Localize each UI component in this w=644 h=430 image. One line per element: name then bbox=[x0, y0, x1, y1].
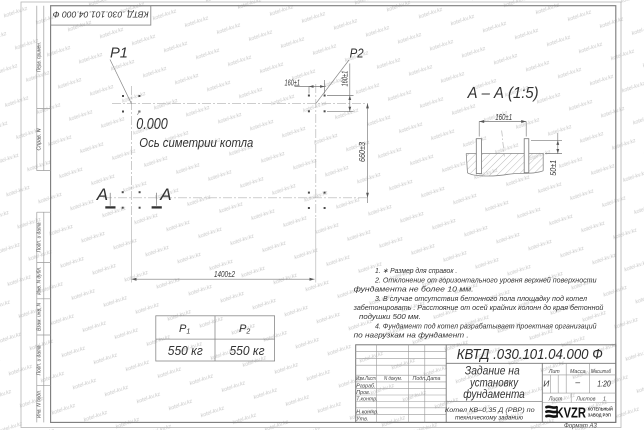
svg-text:1: 1 bbox=[603, 396, 606, 402]
svg-text:Справ. N: Справ. N bbox=[37, 128, 43, 150]
svg-text:Н.контр.: Н.контр. bbox=[356, 410, 378, 416]
svg-text:A: A bbox=[96, 185, 108, 204]
svg-text:Ось симетрии котла: Ось симетрии котла bbox=[139, 136, 253, 150]
svg-text:Изм.Лист: Изм.Лист bbox=[356, 376, 376, 382]
svg-text:3. В случае отсутствия бетонно: 3. В случае отсутствия бетонного пола пл… bbox=[375, 294, 587, 303]
svg-text:по нагрузкам на фундамент .: по нагрузкам на фундамент . bbox=[354, 331, 469, 340]
svg-text:Котел КВ–0,35 Д (РВР) по: Котел КВ–0,35 Д (РВР) по bbox=[445, 407, 535, 414]
svg-text:Инв. N подл.: Инв. N подл. bbox=[37, 390, 43, 418]
svg-text:1:20: 1:20 bbox=[597, 379, 611, 388]
svg-text:ЗАВОД РЭП: ЗАВОД РЭП bbox=[588, 413, 611, 418]
svg-text:160±1: 160±1 bbox=[340, 71, 349, 87]
svg-text:И: И bbox=[543, 379, 550, 389]
svg-text:забетонировать . Расстояние от: забетонировать . Расстояние от осей край… bbox=[353, 303, 604, 312]
svg-text:1400±2: 1400±2 bbox=[214, 270, 235, 279]
svg-text:Разраб.: Разраб. bbox=[356, 384, 375, 390]
svg-text:550 кг: 550 кг bbox=[168, 344, 203, 358]
svg-text:КВТД .030.101.04.000 Ф: КВТД .030.101.04.000 Ф bbox=[457, 347, 603, 363]
svg-text:2. Отклонение от горизонтально: 2. Отклонение от горизонтального уровня … bbox=[374, 276, 596, 285]
svg-text:Взам. инв. N: Взам. инв. N bbox=[37, 303, 43, 331]
svg-text:Подп. и дата: Подп. и дата bbox=[37, 345, 43, 375]
svg-text:техническому заданию: техническому заданию bbox=[455, 413, 523, 421]
svg-text:Лит: Лит bbox=[548, 369, 561, 375]
svg-text:Инв. N дубл.: Инв. N дубл. bbox=[37, 267, 43, 295]
svg-text:P2: P2 bbox=[350, 46, 365, 61]
svg-text:КОТЕЛЬНЫЙ: КОТЕЛЬНЫЙ bbox=[588, 405, 613, 412]
svg-text:Утв.: Утв. bbox=[356, 417, 368, 423]
svg-text:160±1: 160±1 bbox=[495, 113, 512, 122]
svg-text:N докум.: N докум. bbox=[384, 376, 402, 382]
svg-text:Перв. примен.: Перв. примен. bbox=[37, 42, 43, 72]
svg-text:А – А (1:5): А – А (1:5) bbox=[467, 85, 539, 102]
svg-text:660±3: 660±3 bbox=[357, 142, 367, 162]
svg-text:50±1: 50±1 bbox=[549, 160, 558, 176]
svg-text:KVZR: KVZR bbox=[556, 405, 587, 421]
svg-text:550 кг: 550 кг bbox=[230, 344, 265, 358]
svg-text:установку: установку bbox=[469, 377, 519, 389]
svg-text:4. Фундамент под котел разраба: 4. Фундамент под котел разрабатывает про… bbox=[375, 321, 597, 330]
svg-text:Подп.: Подп. bbox=[413, 376, 427, 382]
svg-text:Листов: Листов bbox=[575, 396, 596, 402]
svg-text:160±1: 160±1 bbox=[285, 78, 301, 87]
svg-text:A: A bbox=[159, 185, 171, 204]
svg-text:Масса: Масса bbox=[570, 369, 586, 375]
svg-text:Т.контр.: Т.контр. bbox=[356, 397, 377, 403]
svg-text:фундамента не более 10 мм.: фундамента не более 10 мм. bbox=[354, 285, 474, 294]
svg-text:Лист: Лист bbox=[548, 396, 563, 402]
svg-text:Формат А3: Формат А3 bbox=[564, 423, 597, 429]
svg-text:1. ∗ Размер для справок .: 1. ∗ Размер для справок . bbox=[375, 266, 457, 275]
svg-text:0.000: 0.000 bbox=[136, 116, 168, 133]
svg-text:Дата: Дата bbox=[426, 376, 441, 382]
svg-text:фундамента: фундамента bbox=[463, 389, 525, 401]
svg-text:КВТД .030.101.04.000 Ф: КВТД .030.101.04.000 Ф bbox=[52, 10, 148, 20]
svg-text:–: – bbox=[574, 377, 580, 387]
svg-text:Масштаб: Масштаб bbox=[591, 369, 612, 375]
svg-text:Пров.: Пров. bbox=[356, 390, 370, 396]
svg-text:Задание на: Задание на bbox=[465, 366, 520, 378]
svg-text:подушки 500 мм.: подушки 500 мм. bbox=[359, 312, 421, 321]
svg-text:P1: P1 bbox=[110, 45, 128, 61]
svg-text:Подп. и дата: Подп. и дата bbox=[37, 222, 43, 252]
